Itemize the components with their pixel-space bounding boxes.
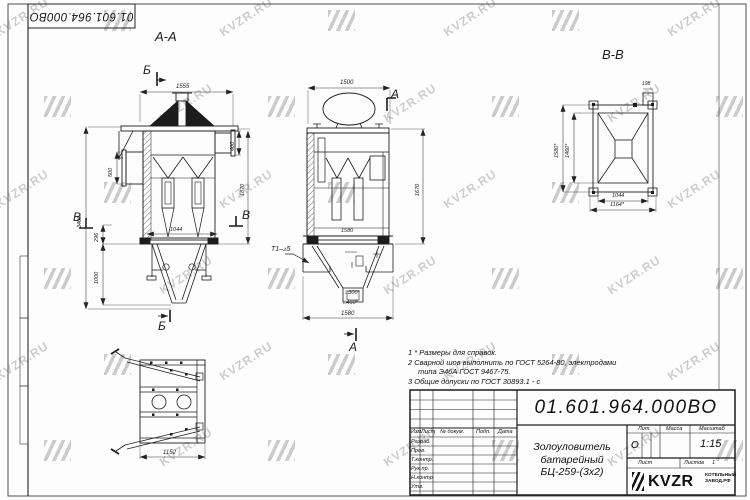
view-section-vv xyxy=(563,89,657,212)
title-block-grid xyxy=(410,390,735,495)
drawing-linework xyxy=(0,0,750,500)
drawing-sheet: KVZR.RUKVZR.RUKVZR.RUKVZR.RUKVZR.RUKVZR.… xyxy=(0,0,750,500)
view-section-aa xyxy=(79,72,250,322)
view-front xyxy=(285,88,425,341)
view-top xyxy=(111,349,205,459)
